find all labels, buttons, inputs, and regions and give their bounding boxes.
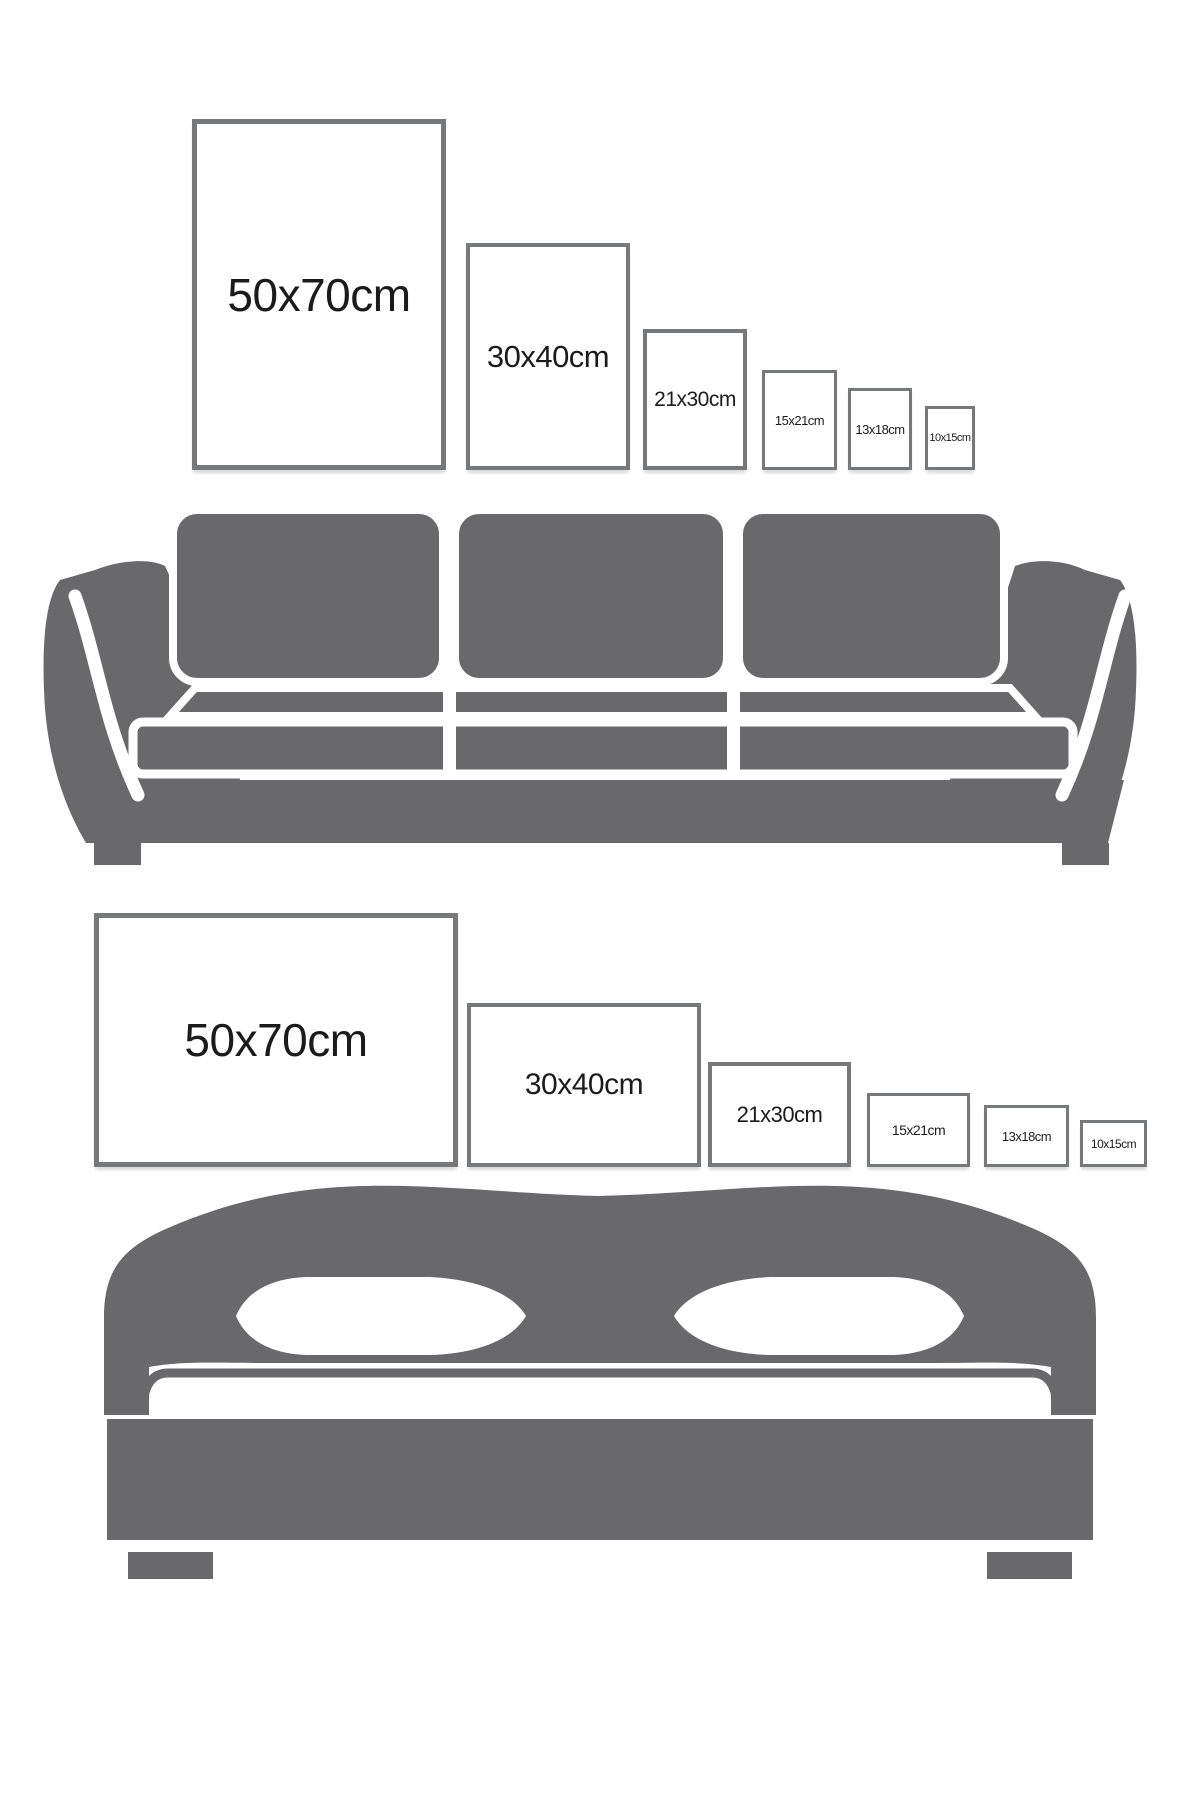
- bed-foot: [987, 1552, 1072, 1579]
- frame-size-label: 50x70cm: [227, 272, 410, 318]
- frame-size-label: 21x30cm: [737, 1104, 823, 1126]
- bed-mattress-line: [143, 1373, 1057, 1410]
- frame-size-label: 15x21cm: [892, 1123, 945, 1137]
- frame-size-label: 13x18cm: [1002, 1130, 1051, 1143]
- size-frame-landscape-50x70: 50x70cm: [94, 913, 458, 1167]
- bed-icon: [104, 1186, 1096, 1579]
- sofa-deck-band: [170, 688, 1035, 716]
- sofa-back-cushion: [739, 510, 1004, 682]
- bed-illustration: [0, 1180, 1200, 1600]
- bed-foot: [128, 1552, 213, 1579]
- sofa-seat-band: [133, 722, 1073, 774]
- sofa-illustration: [0, 440, 1200, 880]
- frame-size-label: 50x70cm: [184, 1017, 367, 1063]
- sofa-back-cushion: [455, 510, 727, 682]
- bed-base: [107, 1419, 1093, 1540]
- sofa-foot: [94, 843, 141, 865]
- size-frame-landscape-13x18: 13x18cm: [984, 1105, 1069, 1167]
- bed-headboard: [104, 1186, 1096, 1415]
- frame-size-label: 21x30cm: [654, 389, 736, 410]
- size-frame-portrait-50x70: 50x70cm: [192, 119, 446, 470]
- poster-size-guide-infographic: { "colors": { "furniture_gray": "#69696b…: [0, 0, 1200, 1800]
- size-frame-portrait-30x40: 30x40cm: [466, 243, 630, 470]
- seat-divider: [727, 680, 740, 780]
- size-frame-landscape-21x30: 21x30cm: [708, 1062, 851, 1167]
- size-frame-landscape-30x40: 30x40cm: [467, 1003, 701, 1167]
- size-frame-landscape-10x15: 10x15cm: [1080, 1120, 1147, 1167]
- frame-size-label: 10x15cm: [1091, 1138, 1136, 1150]
- sofa-foot: [1062, 843, 1109, 865]
- size-frame-landscape-15x21: 15x21cm: [867, 1093, 970, 1167]
- frame-size-label: 15x21cm: [775, 414, 824, 427]
- seat-divider: [443, 680, 456, 780]
- sofa-icon: [44, 510, 1137, 865]
- frame-size-label: 30x40cm: [525, 1070, 643, 1100]
- frame-size-label: 13x18cm: [855, 423, 904, 436]
- sofa-back-cushion: [173, 510, 443, 682]
- frame-size-label: 30x40cm: [487, 341, 609, 372]
